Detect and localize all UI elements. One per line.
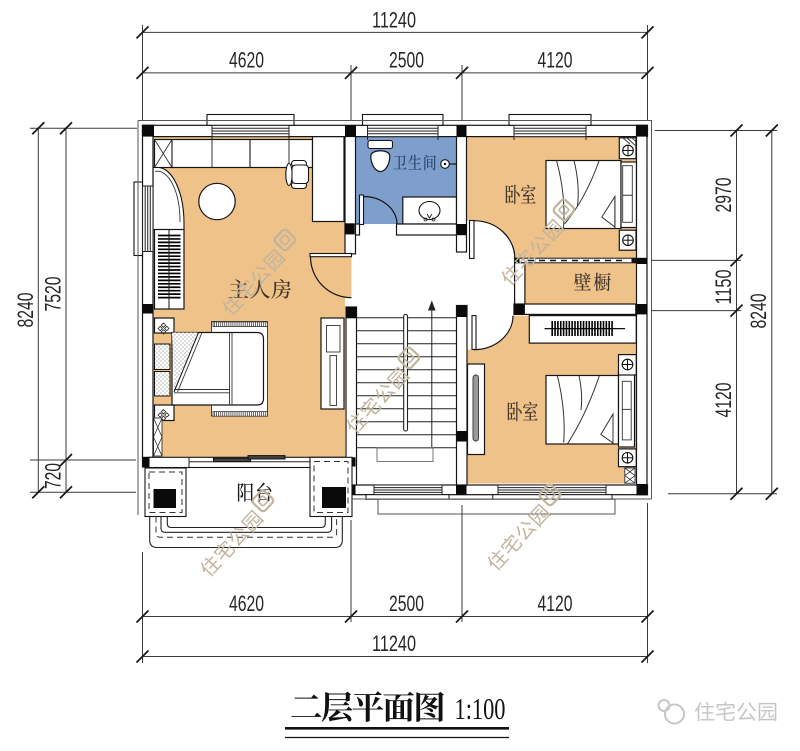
svg-text:8240: 8240 bbox=[13, 293, 38, 328]
svg-text:2970: 2970 bbox=[711, 178, 736, 213]
svg-text:1:100: 1:100 bbox=[455, 691, 506, 726]
svg-text:4120: 4120 bbox=[538, 591, 573, 616]
svg-text:11240: 11240 bbox=[372, 631, 416, 656]
svg-text:7520: 7520 bbox=[41, 277, 66, 312]
svg-text:2500: 2500 bbox=[389, 48, 424, 73]
svg-text:1150: 1150 bbox=[711, 270, 736, 305]
svg-text:2500: 2500 bbox=[389, 591, 424, 616]
svg-text:4620: 4620 bbox=[229, 591, 264, 616]
svg-text:4120: 4120 bbox=[538, 48, 573, 73]
svg-text:11240: 11240 bbox=[372, 8, 416, 33]
svg-text:8240: 8240 bbox=[746, 294, 771, 329]
svg-text:4120: 4120 bbox=[711, 383, 736, 418]
svg-text:720: 720 bbox=[41, 463, 66, 489]
svg-text:4620: 4620 bbox=[229, 48, 264, 73]
